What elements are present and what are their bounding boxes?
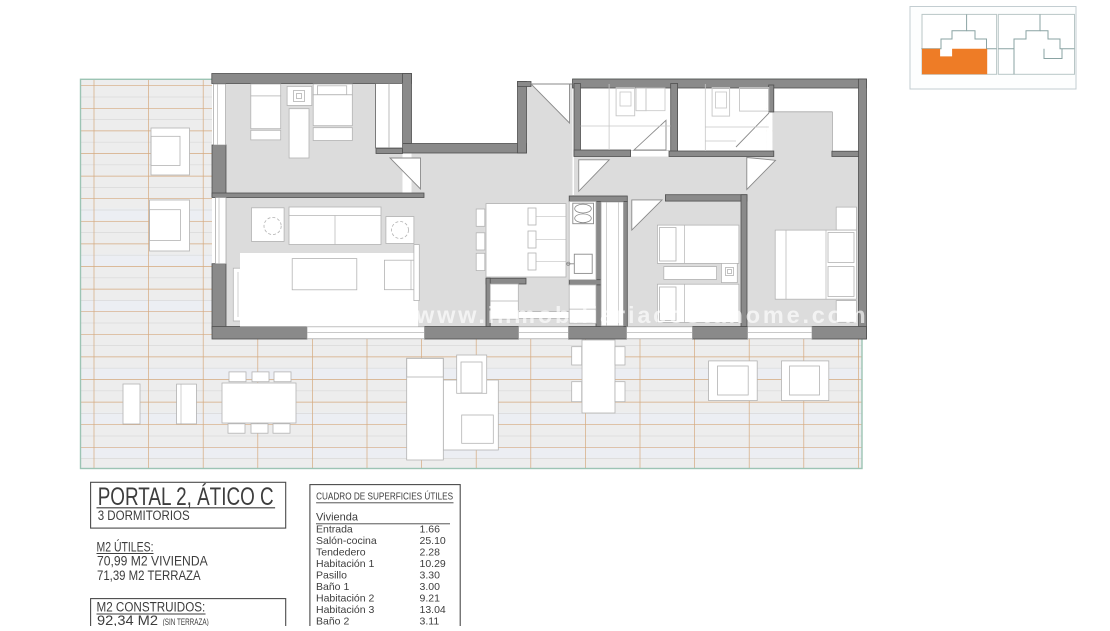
svg-text:70,99 M2 VIVIENDA: 70,99 M2 VIVIENDA [97, 554, 208, 569]
svg-text:Habitación 2: Habitación 2 [316, 592, 375, 604]
svg-text:25.10: 25.10 [420, 535, 446, 547]
svg-text:92,34 M2: 92,34 M2 [97, 613, 158, 626]
svg-text:Habitación 1: Habitación 1 [316, 558, 375, 570]
svg-text:13.04: 13.04 [420, 604, 446, 616]
svg-text:CUADRO DE SUPERFICIES ÚTILES: CUADRO DE SUPERFICIES ÚTILES [316, 490, 453, 503]
svg-text:Salón-cocina: Salón-cocina [316, 535, 377, 547]
svg-text:Entrada: Entrada [316, 523, 353, 535]
svg-text:3.11: 3.11 [420, 615, 440, 626]
svg-text:Pasillo: Pasillo [316, 569, 347, 581]
svg-text:3.00: 3.00 [420, 581, 441, 593]
svg-text:www.inmobiliariacostahome.com: www.inmobiliariacostahome.com [415, 302, 869, 328]
svg-text:2.28: 2.28 [420, 546, 441, 558]
svg-text:3 DORMITORIOS: 3 DORMITORIOS [98, 508, 190, 523]
svg-text:Tendedero: Tendedero [316, 546, 366, 558]
svg-text:9.21: 9.21 [420, 592, 441, 604]
svg-text:Baño 1: Baño 1 [316, 581, 349, 593]
svg-text:Baño 2: Baño 2 [316, 615, 349, 626]
svg-text:3.30: 3.30 [420, 569, 441, 581]
svg-text:M2 ÚTILES:: M2 ÚTILES: [97, 540, 154, 555]
svg-text:Vivienda: Vivienda [316, 511, 359, 523]
svg-text:1.66: 1.66 [420, 523, 441, 535]
svg-text:71,39 M2 TERRAZA: 71,39 M2 TERRAZA [97, 568, 201, 583]
svg-text:Habitación 3: Habitación 3 [316, 604, 375, 616]
svg-text:10.29: 10.29 [420, 558, 446, 570]
svg-text:(SIN TERRAZA): (SIN TERRAZA) [163, 617, 209, 626]
svg-text:PORTAL 2, ÁTICO C: PORTAL 2, ÁTICO C [98, 482, 274, 511]
